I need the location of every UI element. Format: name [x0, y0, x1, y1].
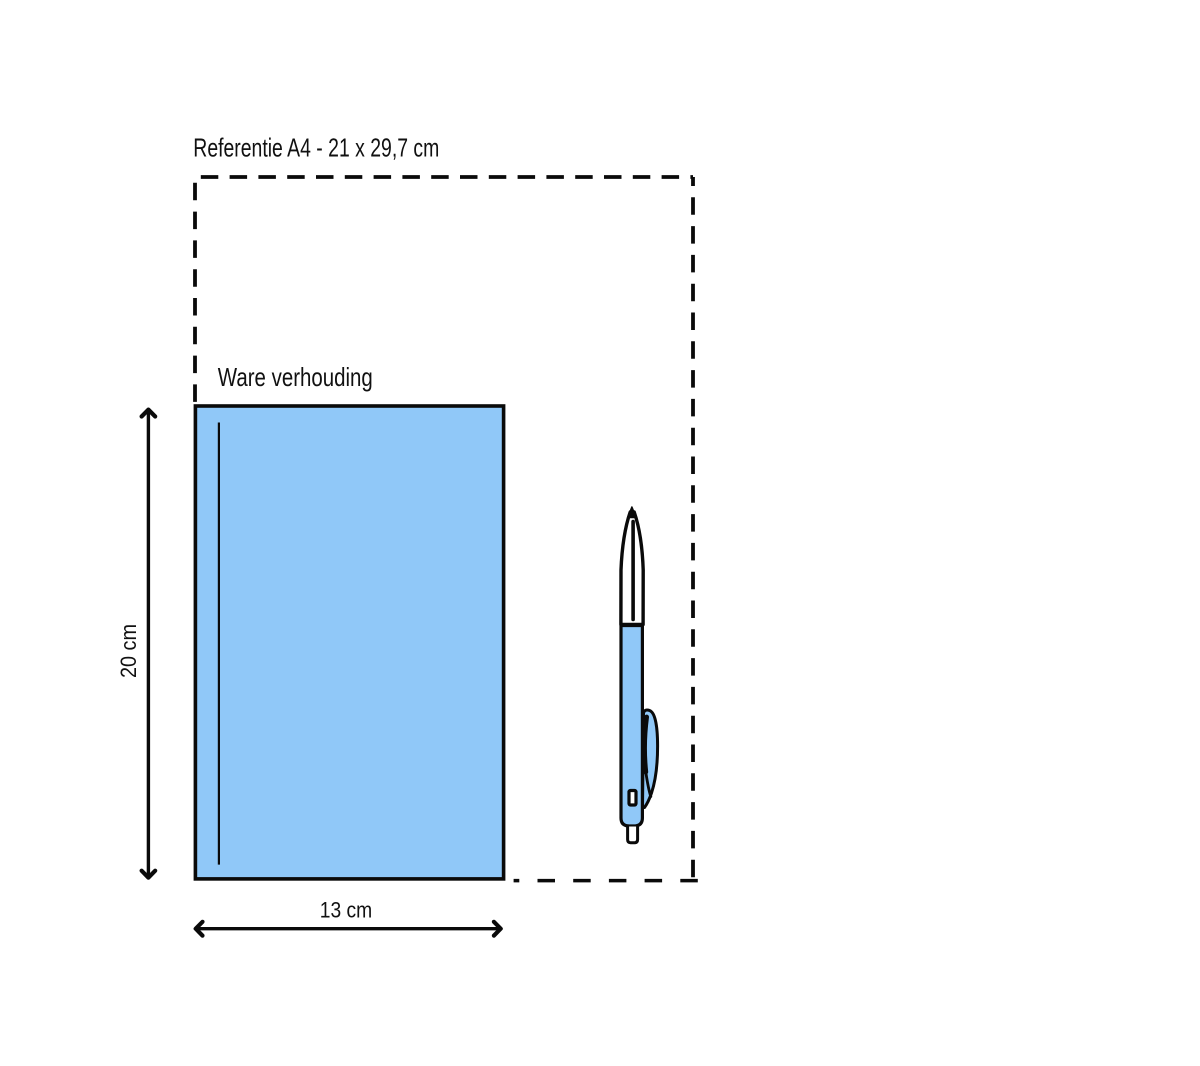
svg-text:20 cm: 20 cm: [116, 624, 141, 678]
svg-text:Ware verhouding: Ware verhouding: [218, 362, 373, 392]
svg-text:Referentie A4 - 21 x 29,7 cm: Referentie A4 - 21 x 29,7 cm: [193, 133, 439, 163]
svg-text:13 cm: 13 cm: [320, 898, 373, 923]
